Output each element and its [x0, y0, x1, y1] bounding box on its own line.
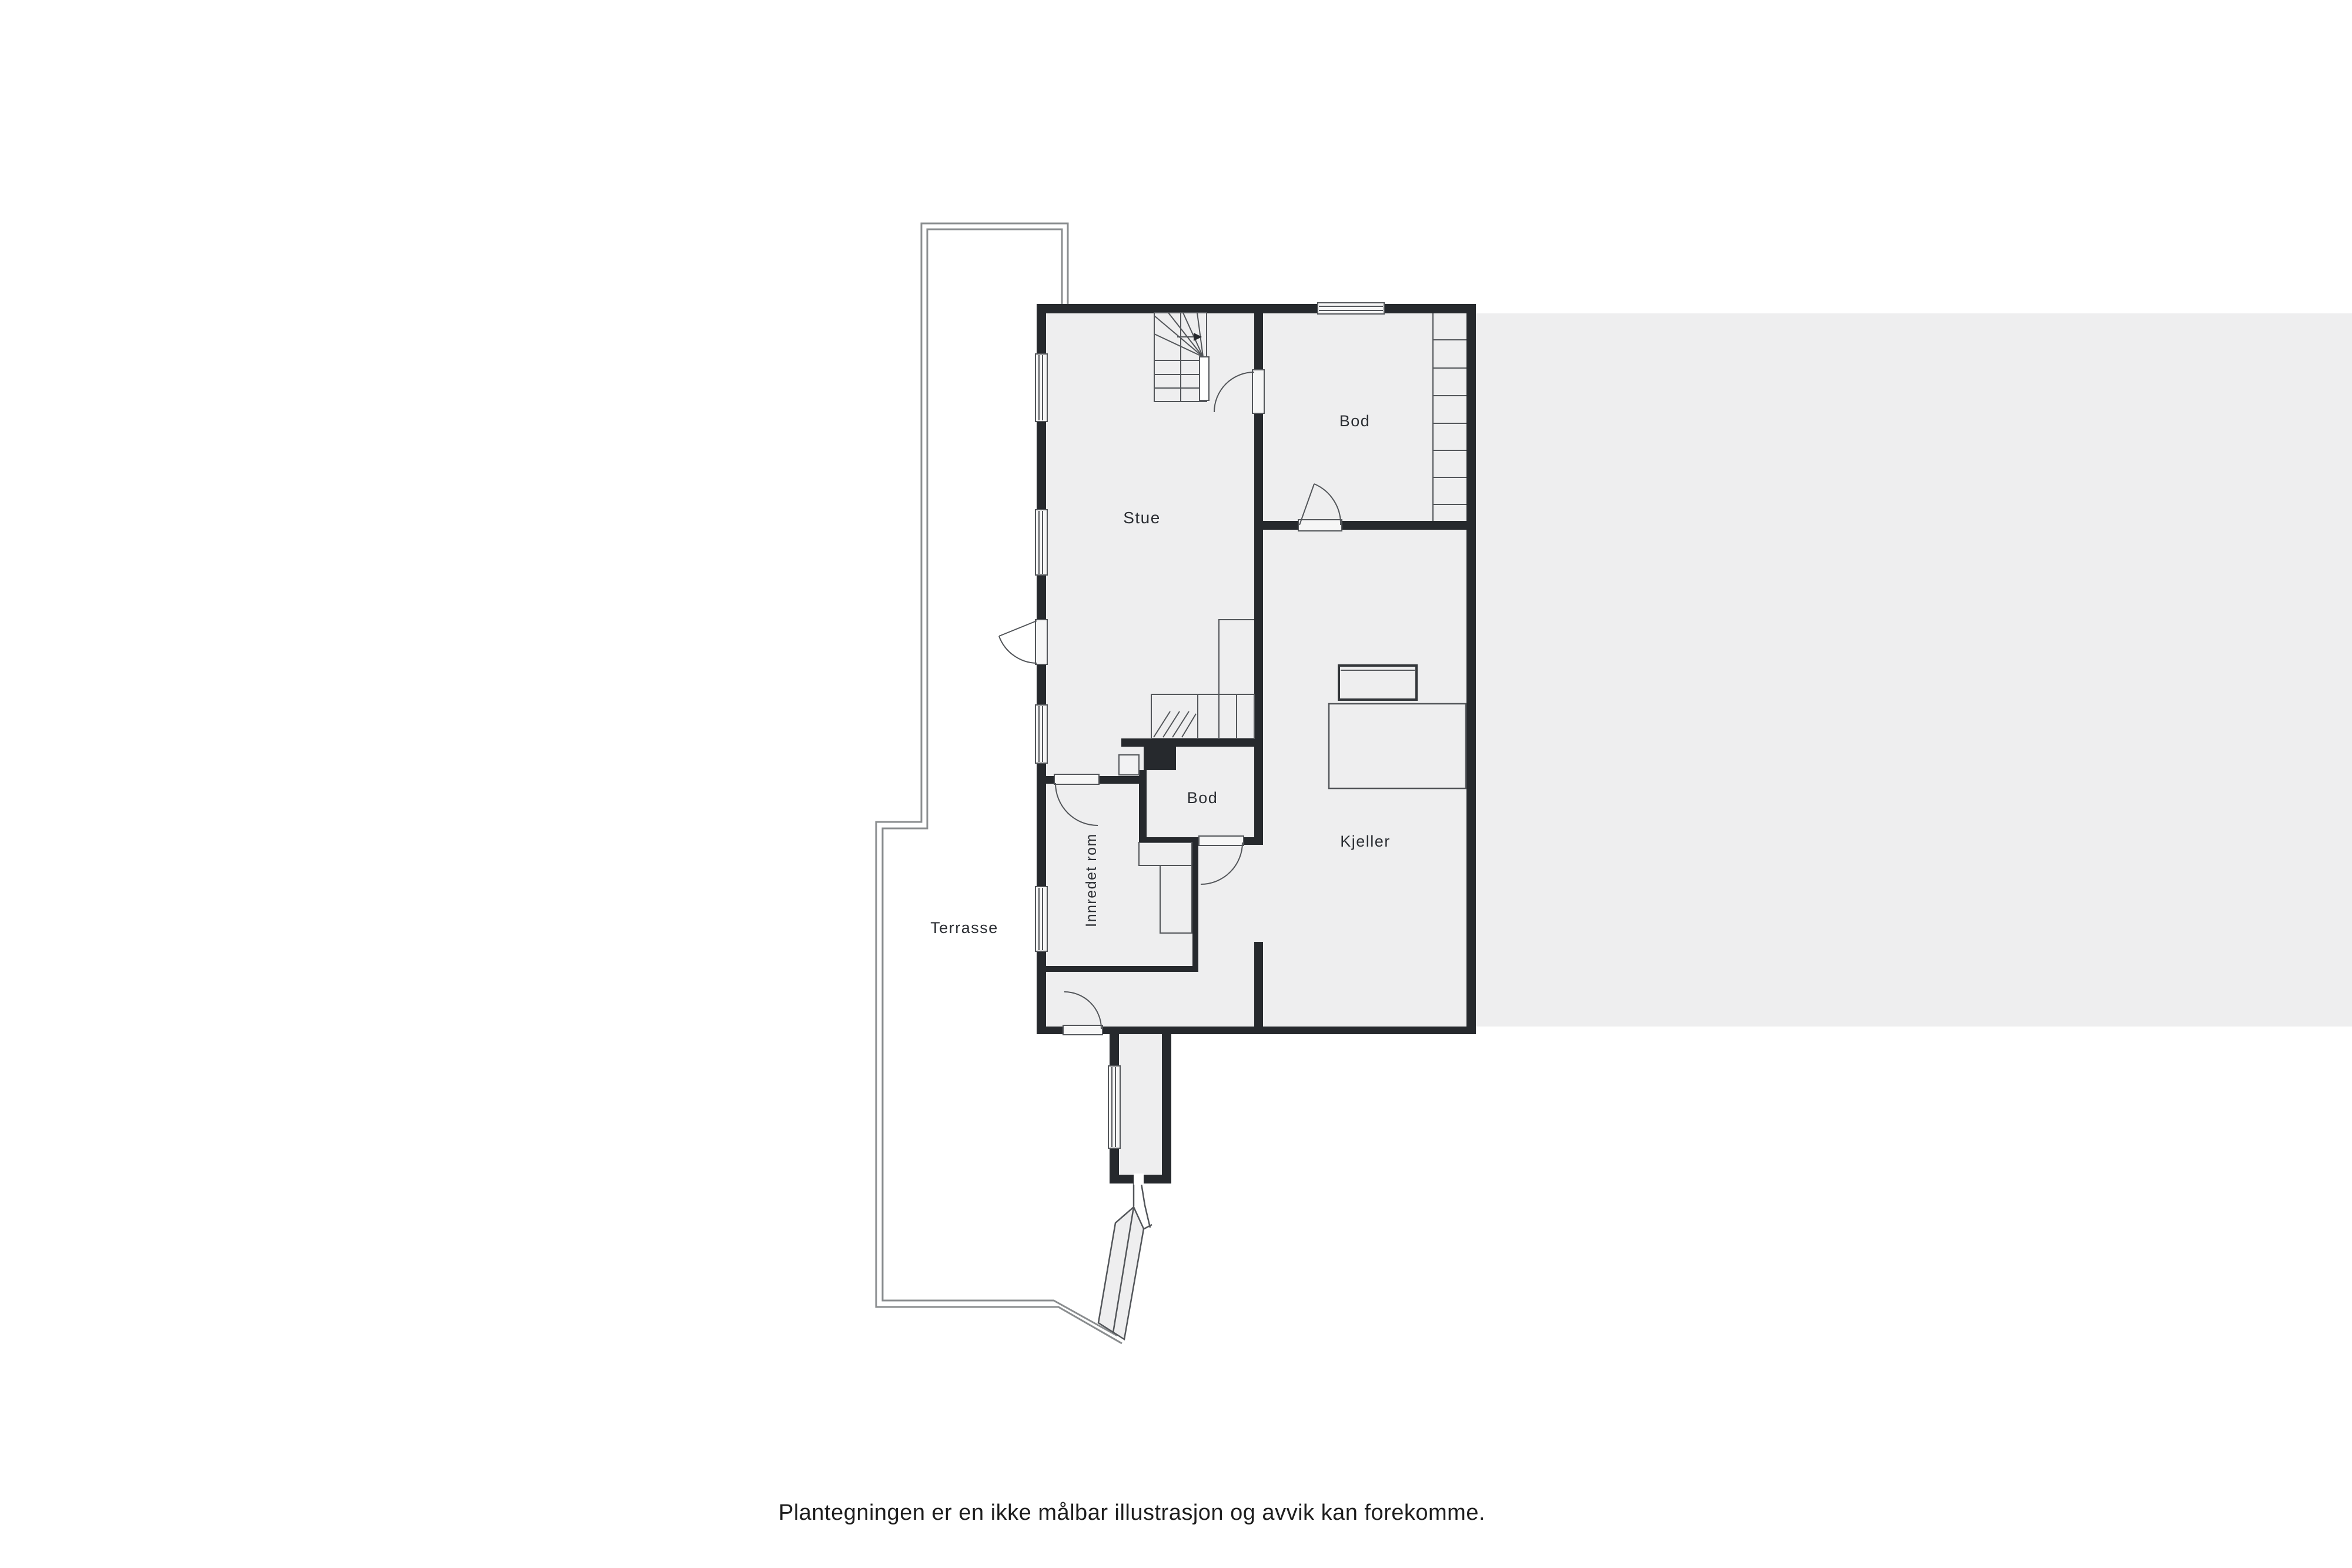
room-label-terrasse: Terrasse [930, 919, 998, 937]
chimney-block [1144, 742, 1176, 770]
corridor-floor [1119, 1034, 1162, 1175]
closet-1 [1139, 842, 1192, 865]
floorplan-canvas: Stue Bod Kjeller Bod Terrasse Innredet r… [0, 0, 2352, 1568]
window-stue-2 [1035, 510, 1047, 575]
wall-top [1037, 304, 1476, 313]
outdoor-stair-jamb-right [1141, 1183, 1150, 1228]
room-label-bod-small: Bod [1187, 789, 1218, 807]
wall-bod-small-left [1139, 770, 1147, 845]
floorplan-page: Stue Bod Kjeller Bod Terrasse Innredet r… [0, 0, 2352, 1568]
wall-right [1466, 304, 1476, 1034]
window-corridor [1108, 1066, 1120, 1148]
staircase-upper-rail [1200, 357, 1209, 400]
window-stue-3 [1035, 705, 1047, 763]
stair-base-bar [1121, 738, 1254, 747]
wall-corridor-right [1162, 1034, 1171, 1183]
kjeller-fixture-large [1329, 704, 1466, 788]
wall-innredet-right [1192, 844, 1198, 972]
door-terrace [999, 620, 1047, 664]
corridor-bottom-opening [1134, 1174, 1144, 1185]
wall-interior-vertical-lower [1254, 942, 1263, 1027]
room-label-kjeller: Kjeller [1340, 833, 1391, 850]
room-label-stue: Stue [1123, 509, 1161, 527]
window-bod-top [1318, 303, 1384, 314]
wall-bod-top-bottom [1263, 521, 1466, 530]
window-innredet [1035, 887, 1047, 951]
caption: Plantegningen er en ikke målbar illustra… [779, 1500, 1485, 1525]
understair-shelf [1119, 755, 1139, 775]
closet-2 [1160, 865, 1192, 933]
window-stue-1 [1035, 354, 1047, 422]
outdoor-stair [1098, 1183, 1152, 1339]
room-label-innredet-rom: Innredet rom [1083, 833, 1100, 927]
wall-innredet-bottom [1045, 966, 1198, 972]
room-label-bod-top: Bod [1339, 412, 1371, 430]
outdoor-stair-shape [1098, 1207, 1144, 1339]
